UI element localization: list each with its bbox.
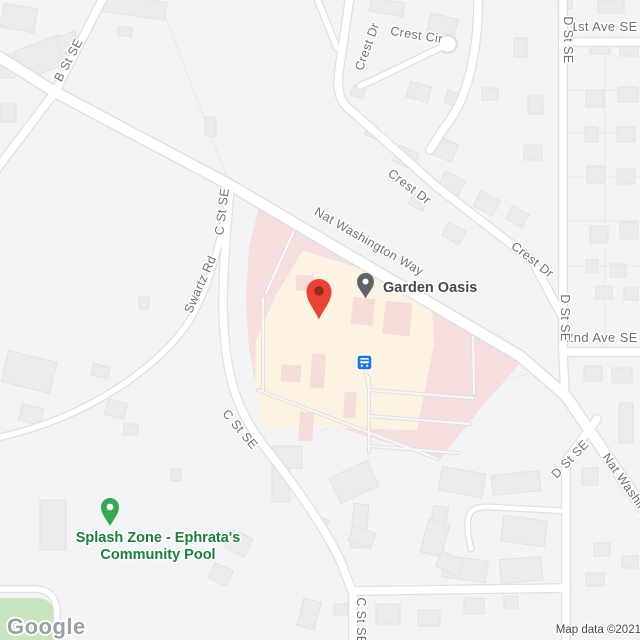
street-label-c-st-se-bottom: C St SE [354, 597, 368, 640]
map-attribution: Map data ©2021 [556, 624, 640, 636]
map-canvas[interactable]: B St SE C St SE Swartz Rd Crest Dr Crest… [0, 0, 640, 640]
street-label-1st-ave-se: 1st Ave SE [570, 19, 637, 34]
destination-marker-dot [314, 286, 324, 296]
street-label-2nd-ave-se: 2nd Ave SE [566, 330, 638, 345]
google-logo[interactable]: Google [7, 614, 86, 639]
street-label-d-st-se-mid: D St SE [558, 294, 572, 341]
garden-oasis-label[interactable]: Garden Oasis [383, 280, 477, 296]
bus-stop-icon[interactable] [357, 355, 372, 370]
splash-zone-pin-dot [107, 504, 114, 511]
splash-zone-label-line2[interactable]: Community Pool [100, 547, 215, 563]
street-label-d-st-se-top: D St SE [561, 16, 575, 63]
splash-zone-label-line1[interactable]: Splash Zone - Ephrata's [76, 530, 241, 546]
garden-oasis-pin-dot [363, 279, 369, 285]
